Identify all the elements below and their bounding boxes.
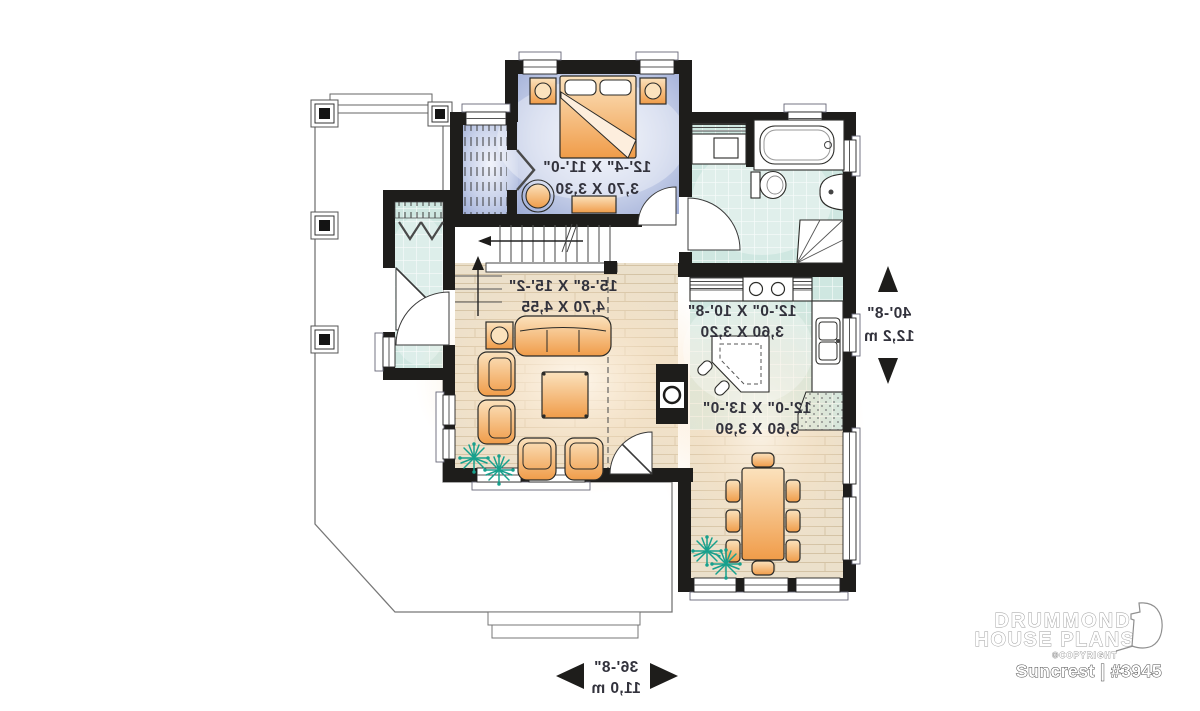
porch-column [311,100,338,127]
kitchen-sink [816,318,840,364]
bedroom-dimensions-metric: 3,70 X 3,30 [555,181,639,198]
wood-stove [656,364,688,424]
side-table-lamp [486,322,513,349]
cooktop [743,277,793,301]
floor-plan-drawing: 12'-4" X 11'-0" 3,70 X 3,30 15'-8" X 15'… [0,0,1200,711]
dimension-arrow-up [878,266,898,292]
living-room-dimensions-metric: 4,70 X 4,55 [521,299,605,316]
plant [484,455,514,485]
stair-railing [486,263,617,272]
brand-logo: DRUMMOND HOUSE PLANS ©COPYRIGHT Suncrest… [975,603,1163,681]
corner-shower [797,220,843,263]
porch-column [311,326,338,353]
plant [692,536,722,566]
dining-chair [752,453,774,467]
washer [714,138,738,158]
brand-copyright: ©COPYRIGHT [1052,651,1117,660]
dresser [572,196,616,213]
living-room-dimensions-imperial: 15'-8" X 15'-2" [508,278,617,295]
dining-chair [786,480,800,502]
dining-room-dimensions-imperial: 12'-0" X 13'-0" [702,400,811,417]
coffee-table [542,372,588,418]
armchair [478,400,515,444]
newel-post [604,261,617,274]
kitchen-dimensions-imperial: 12'-0" X 10'-8" [687,303,796,320]
dimension-arrow-left [556,663,584,689]
toilet [751,172,786,199]
bathtub [754,120,844,170]
nightstand [530,78,556,104]
armchair [478,352,515,396]
sofa [515,316,611,356]
armchair [518,438,556,480]
armchair [565,438,603,480]
entry-closet-shelf [395,202,443,218]
laundry-cabinet [692,122,746,134]
dimension-arrow-right [650,663,678,689]
width-metric: 11,0 m [591,680,641,697]
kitchen-dimensions-metric: 3,60 X 3,20 [700,324,784,341]
nightstand [640,78,666,104]
dining-room-dimensions-metric: 3,60 X 3,90 [715,421,799,438]
bedroom-chair [522,180,554,212]
floor-plan-page: 12'-4" X 11'-0" 3,70 X 3,30 15'-8" X 15'… [0,0,1200,711]
dining-chair [786,540,800,562]
porch-step [488,612,640,625]
brand-name-line2: HOUSE PLANS [975,629,1136,651]
plan-title: Suncrest | #3945 [1016,661,1162,681]
porch-step [492,625,638,638]
overall-width-dimension: 36'-8" 11,0 m [556,659,678,697]
closet-hanging-rack [463,125,507,214]
dining-chair [726,480,740,502]
bedroom-dimensions-imperial: 12'-4" X 11'-0" [543,159,651,176]
dimension-arrow-down [878,358,898,384]
dining-chair [752,561,774,575]
width-imperial: 36'-8" [594,659,638,676]
porch-column [428,102,452,126]
porch-column [311,212,338,239]
overall-depth-dimension: 40'-8" 12,2 m [864,266,915,384]
dining-chair [786,510,800,532]
bed [560,76,636,158]
porch-railing [330,94,432,105]
dining-chair [726,510,740,532]
depth-metric: 12,2 m [864,328,915,345]
depth-imperial: 40'-8" [867,305,911,322]
plant [711,549,741,579]
